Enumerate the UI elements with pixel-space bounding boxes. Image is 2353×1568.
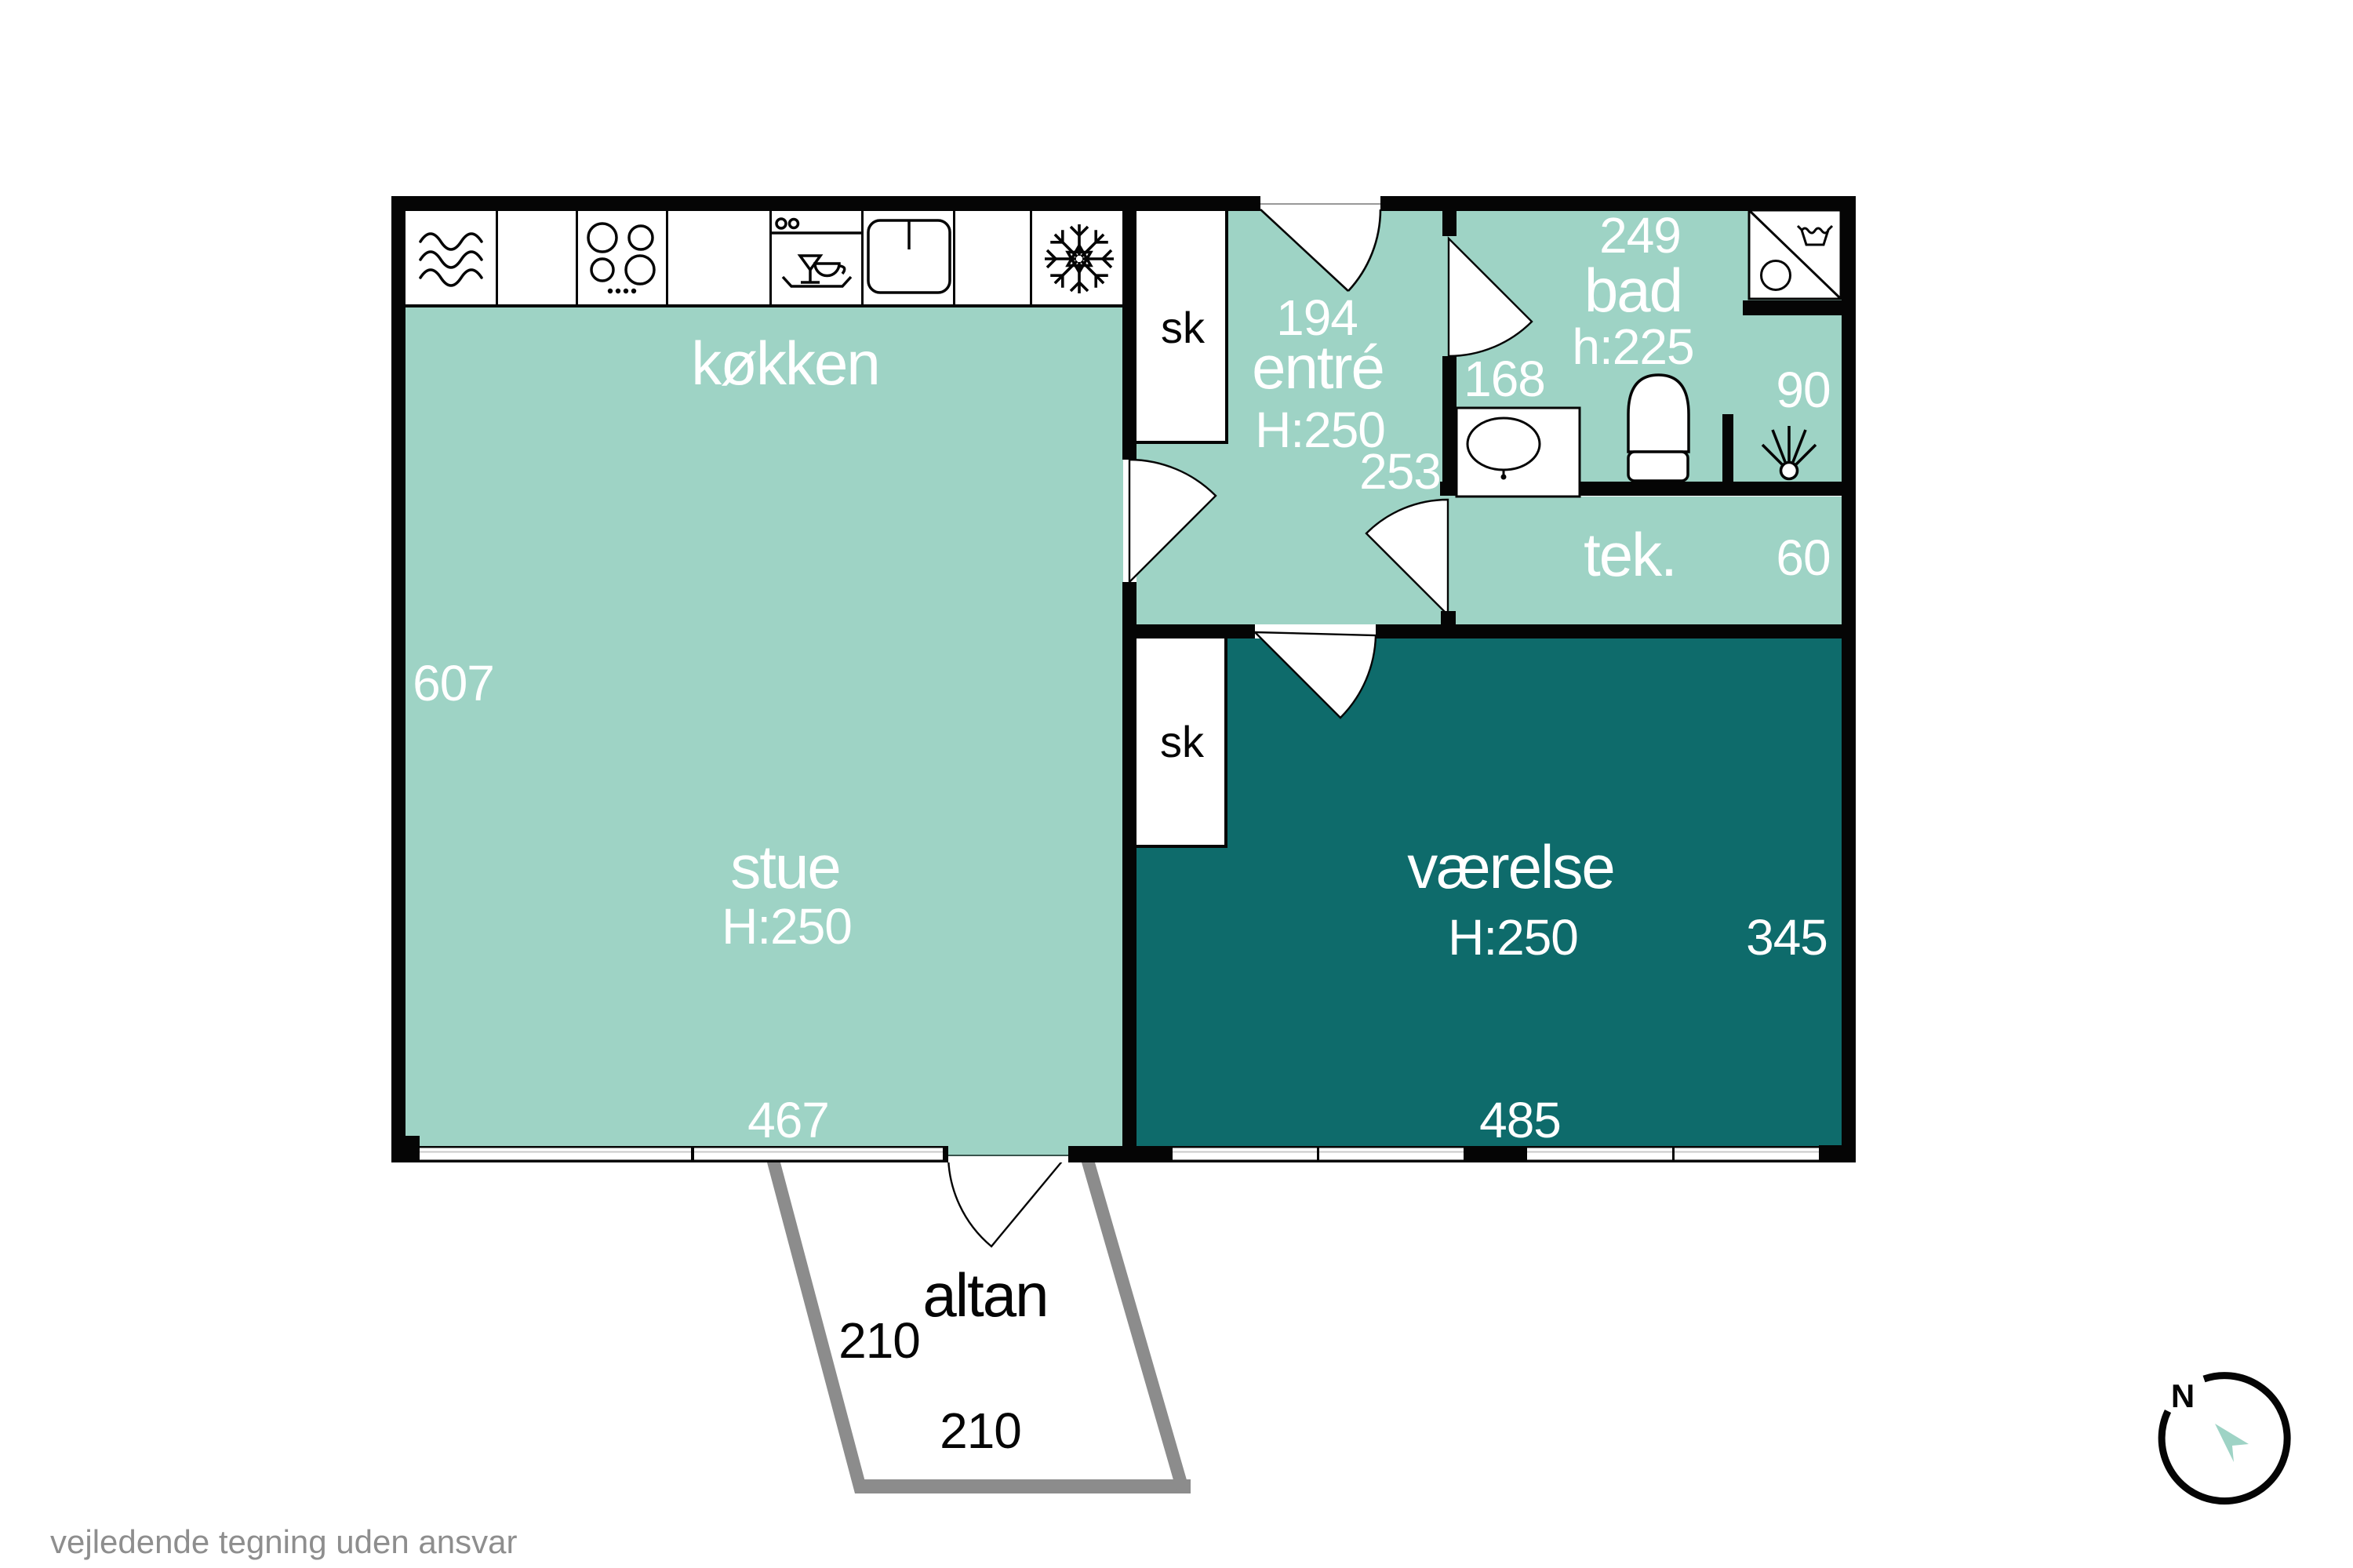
svg-text:467: 467 [747,1092,829,1148]
svg-text:køkken: køkken [691,329,878,398]
svg-text:249: 249 [1599,207,1681,264]
svg-text:194: 194 [1276,289,1358,346]
svg-text:stue: stue [730,832,839,901]
svg-text:485: 485 [1479,1092,1561,1148]
svg-text:altan: altan [922,1261,1047,1330]
svg-text:tek.: tek. [1584,520,1676,589]
svg-text:90: 90 [1776,362,1830,418]
svg-text:60: 60 [1776,529,1830,586]
svg-text:vejledende tegning uden ansvar: vejledende tegning uden ansvar [50,1523,517,1560]
svg-text:sk: sk [1161,303,1206,352]
svg-text:N: N [2171,1377,2195,1414]
svg-text:210: 210 [940,1402,1021,1459]
svg-text:bad: bad [1584,256,1682,325]
svg-text:210: 210 [838,1312,920,1369]
svg-text:345: 345 [1746,909,1827,966]
svg-text:H:250: H:250 [1448,909,1578,966]
svg-text:253: 253 [1359,443,1441,500]
svg-text:sk: sk [1160,717,1205,766]
svg-text:h:225: h:225 [1572,318,1693,375]
svg-text:607: 607 [413,655,494,711]
svg-text:H:250: H:250 [722,898,852,955]
svg-text:168: 168 [1464,351,1545,407]
svg-text:værelse: værelse [1407,832,1613,901]
